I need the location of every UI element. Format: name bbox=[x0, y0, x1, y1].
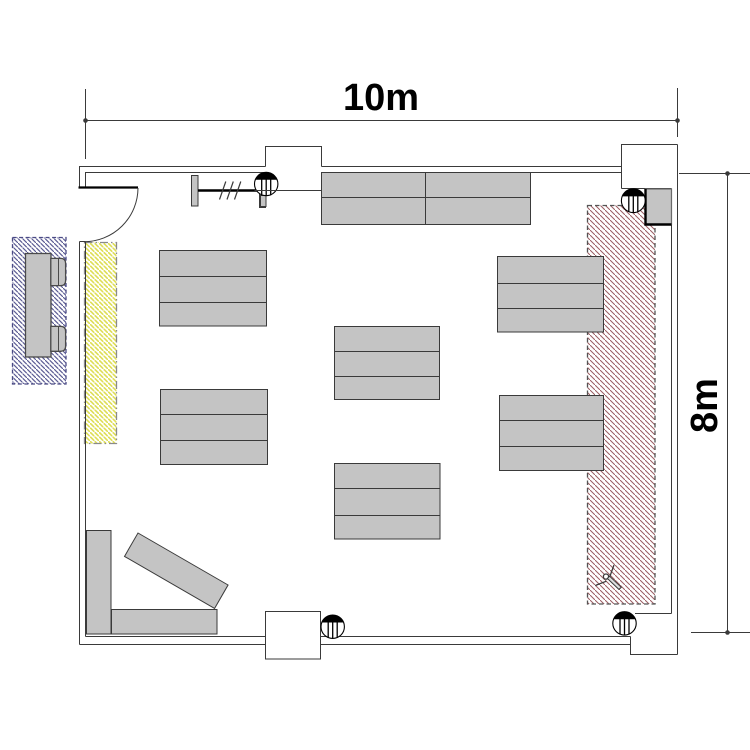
svg-text:8m: 8m bbox=[684, 378, 726, 433]
svg-text:10m: 10m bbox=[343, 77, 419, 119]
